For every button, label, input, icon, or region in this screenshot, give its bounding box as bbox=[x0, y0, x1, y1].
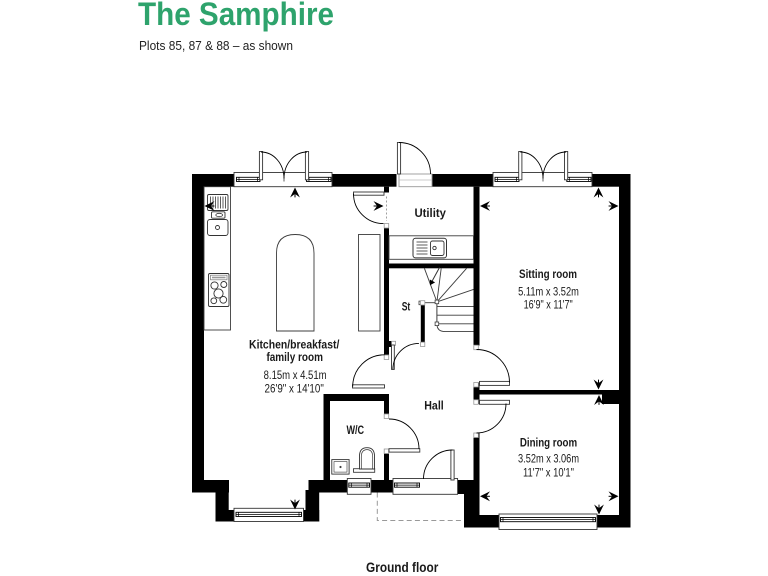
svg-text:Hall: Hall bbox=[424, 399, 444, 412]
svg-text:8.15m x 4.51m: 8.15m x 4.51m bbox=[264, 369, 327, 382]
svg-text:Kitchen/breakfast/: Kitchen/breakfast/ bbox=[249, 338, 340, 351]
svg-text:Dining room: Dining room bbox=[520, 436, 577, 449]
svg-text:3.52m x 3.06m: 3.52m x 3.06m bbox=[518, 453, 579, 466]
svg-text:Utility: Utility bbox=[414, 207, 446, 220]
svg-text:family room: family room bbox=[266, 351, 323, 364]
svg-text:St: St bbox=[402, 300, 411, 313]
svg-text:Ground floor: Ground floor bbox=[366, 560, 439, 575]
svg-text:26'9" x 14'10": 26'9" x 14'10" bbox=[265, 383, 324, 396]
svg-text:5.11m x 3.52m: 5.11m x 3.52m bbox=[518, 285, 579, 298]
svg-text:W/C: W/C bbox=[346, 424, 364, 437]
svg-text:Plots 85, 87 & 88 – as shown: Plots 85, 87 & 88 – as shown bbox=[139, 38, 293, 53]
svg-text:The Samphire: The Samphire bbox=[138, 0, 334, 32]
svg-text:Sitting room: Sitting room bbox=[519, 268, 577, 281]
svg-text:16'9" x 11'7": 16'9" x 11'7" bbox=[524, 299, 573, 312]
svg-text:11'7" x 10'1": 11'7" x 10'1" bbox=[523, 467, 574, 480]
